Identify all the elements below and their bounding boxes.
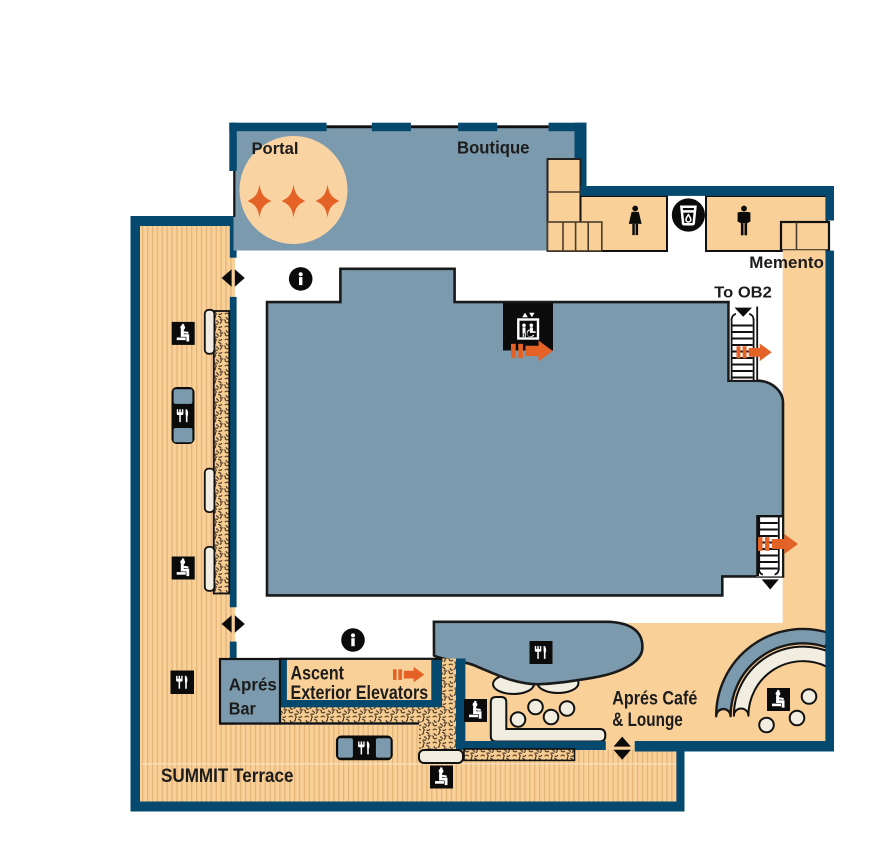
svg-text:& Lounge: & Lounge <box>612 710 683 731</box>
svg-text:Memento: Memento <box>749 253 824 272</box>
svg-text:Ascent: Ascent <box>291 664 345 685</box>
svg-text:Boutique: Boutique <box>457 138 530 158</box>
svg-text:Portal: Portal <box>252 140 299 158</box>
svg-text:Bar: Bar <box>229 699 256 719</box>
svg-text:Aprés Café: Aprés Café <box>612 689 697 710</box>
svg-text:Aprés: Aprés <box>229 675 277 695</box>
svg-text:To OB2: To OB2 <box>714 285 772 302</box>
svg-text:SUMMIT Terrace: SUMMIT Terrace <box>161 766 294 787</box>
svg-text:Exterior Elevators: Exterior Elevators <box>291 683 429 704</box>
